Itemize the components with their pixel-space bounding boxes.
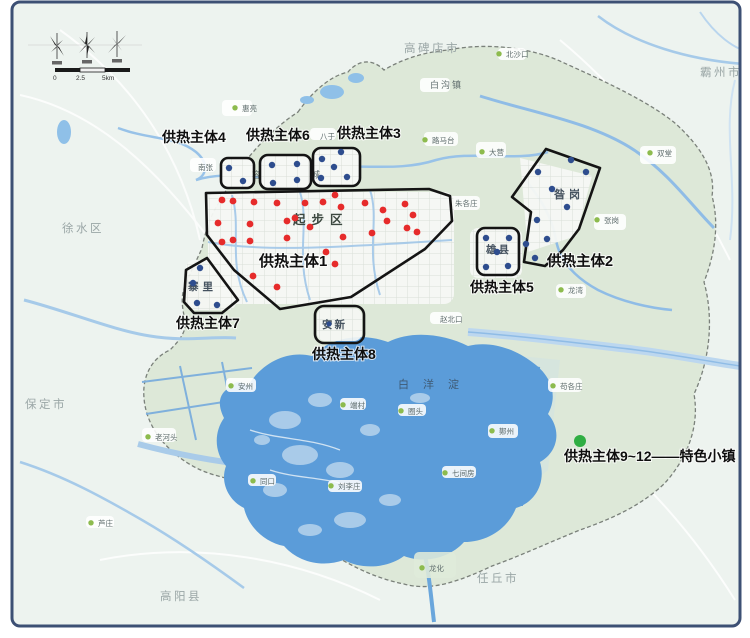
place-dot xyxy=(479,149,484,154)
area-label: 白洋淀 xyxy=(398,377,473,391)
zone-dot xyxy=(384,218,391,225)
zone-dot xyxy=(338,149,344,155)
zone-dot xyxy=(274,284,281,291)
zone-dot xyxy=(332,261,339,268)
zone-dot xyxy=(270,180,276,186)
place-label: 圈头 xyxy=(408,406,423,416)
zone-dot xyxy=(340,234,347,241)
place-label: 惠亮 xyxy=(242,103,257,113)
zone-dot xyxy=(307,224,314,231)
zone-label-9: 供热主体9~12——特色小镇 xyxy=(563,448,736,464)
place-label: 芦庄 xyxy=(98,518,113,528)
place-dot xyxy=(228,383,233,388)
place-dot xyxy=(419,565,424,570)
zone-dot xyxy=(344,174,350,180)
zone-8-dots xyxy=(326,321,331,326)
zone-dot xyxy=(568,157,574,163)
zone-dot xyxy=(318,175,324,181)
zone-dot xyxy=(284,218,291,225)
zone-label-3: 供热主体3 xyxy=(336,125,401,141)
zone-dot xyxy=(294,177,300,183)
place-label: 朱各庄 xyxy=(455,198,478,208)
place-label: 安州 xyxy=(238,381,253,391)
zone-label-8: 供热主体8 xyxy=(311,346,376,362)
zone-dot xyxy=(269,162,275,168)
scale-label-0: 0 xyxy=(53,75,57,82)
zone-dot xyxy=(410,212,417,219)
place-label: 南张 xyxy=(198,162,213,172)
place-label: 鄚州 xyxy=(499,426,514,436)
zone-dot xyxy=(274,200,281,207)
place-label: 双堂 xyxy=(657,148,672,158)
zone-dot xyxy=(219,239,226,246)
zone-dot xyxy=(369,230,376,237)
place-label: 路马台 xyxy=(432,135,455,145)
place-dot xyxy=(550,383,555,388)
zone-dot xyxy=(214,302,220,308)
place-label: 八于 xyxy=(320,132,335,141)
zone-dot xyxy=(414,229,421,236)
place-label: 张岗 xyxy=(604,216,619,225)
city-label: 徐水区 xyxy=(62,221,104,235)
zone-dot xyxy=(483,264,489,270)
zone-9-12-dot xyxy=(574,435,586,447)
place-dot xyxy=(594,217,599,222)
zone-dot xyxy=(319,156,325,162)
zone-dot xyxy=(362,200,369,207)
zone-label-6: 供热主体6 xyxy=(245,127,310,143)
city-label: 高碑店市 xyxy=(404,41,460,55)
place-label: 刘李庄 xyxy=(338,481,361,491)
area-label: 起步区 xyxy=(292,212,349,227)
zone-dot xyxy=(574,435,586,447)
map-screenshot: 白沟镇北沙口惠亮南张容城八于路马台大营双堂张岗朱各庄龙湾赵北口苟各庄鄚州七间房圈… xyxy=(0,0,750,638)
zone-dot xyxy=(494,249,500,255)
zone-dot xyxy=(532,255,538,261)
place-label: 老河头 xyxy=(155,432,178,442)
area-label: 昝岗 xyxy=(553,187,584,201)
zone-dot xyxy=(326,321,331,326)
place-dot xyxy=(340,402,345,407)
place-dot xyxy=(422,137,427,142)
place-label: 同口 xyxy=(260,477,275,486)
zone-dot xyxy=(230,198,237,205)
zone-dot xyxy=(250,273,257,280)
zone-dot xyxy=(332,192,339,199)
zone-dot xyxy=(247,221,254,228)
place-dot xyxy=(489,428,494,433)
place-label: 七间房 xyxy=(452,468,475,478)
zone-label-1: 供热主体1 xyxy=(258,252,327,270)
scale-label-max: 5km xyxy=(102,75,114,82)
place-label: 端村 xyxy=(350,400,365,410)
place-label: 龙湾 xyxy=(568,285,583,295)
place-label: 大营 xyxy=(489,147,504,157)
place-dot xyxy=(647,150,652,155)
zone-dot xyxy=(380,207,387,214)
place-dot xyxy=(558,287,563,292)
zone-dot xyxy=(535,169,541,175)
zone-dot xyxy=(302,200,309,207)
city-label: 任丘市 xyxy=(477,571,519,585)
zone-dot xyxy=(194,300,200,306)
zone-dot xyxy=(320,199,327,206)
zone-dot xyxy=(544,236,550,242)
zone-dot xyxy=(230,237,237,244)
zone-dot xyxy=(402,201,409,208)
zone-dot xyxy=(226,165,232,171)
zone-label-7: 供热主体7 xyxy=(175,315,240,331)
zone-dot xyxy=(292,215,299,222)
place-label: 白沟镇 xyxy=(430,79,463,90)
place-label: 赵北口 xyxy=(440,314,463,324)
zone-dot xyxy=(190,280,196,286)
zone-dot xyxy=(338,204,345,211)
place-label: 龙化 xyxy=(429,563,444,573)
place-label: 北沙口 xyxy=(506,50,529,59)
zone-label-4: 供热主体4 xyxy=(161,129,226,145)
city-label: 保定市 xyxy=(25,397,67,411)
place-label: 苟各庄 xyxy=(560,381,583,391)
place-dot xyxy=(145,434,150,439)
zone-dot xyxy=(505,263,511,269)
place-dot xyxy=(398,408,403,413)
zone-label-2: 供热主体2 xyxy=(546,252,613,270)
zone-dot xyxy=(483,235,489,241)
city-label: 高阳县 xyxy=(160,589,202,603)
area-label: 安新 xyxy=(322,318,347,331)
zone-dot xyxy=(564,204,570,210)
zone-dot xyxy=(294,161,300,167)
zone-dot xyxy=(247,238,254,245)
zone-dot xyxy=(240,178,246,184)
zone-dot xyxy=(251,199,258,206)
map-svg: 白沟镇北沙口惠亮南张容城八于路马台大营双堂张岗朱各庄龙湾赵北口苟各庄鄚州七间房圈… xyxy=(0,0,750,638)
zone-label-5: 供热主体5 xyxy=(469,279,534,295)
place-dot xyxy=(328,483,333,488)
zone-dot xyxy=(583,169,589,175)
place-dot xyxy=(88,520,93,525)
zone-dot xyxy=(219,197,226,204)
zone-dot xyxy=(523,241,529,247)
zone-dot xyxy=(404,225,411,232)
zone-dot xyxy=(284,235,291,242)
zone-dot xyxy=(549,186,555,192)
zone-dot xyxy=(215,220,222,227)
place-dot xyxy=(496,51,501,56)
zone-dot xyxy=(331,164,337,170)
zone-dot xyxy=(506,235,512,241)
zone-dot xyxy=(534,217,540,223)
place-dot xyxy=(250,478,255,483)
place-dot xyxy=(442,470,447,475)
place-dot xyxy=(232,105,237,110)
zone-dot xyxy=(197,265,203,271)
scale-label-mid: 2.5 xyxy=(76,75,85,82)
city-label: 霸州市 xyxy=(700,65,742,79)
